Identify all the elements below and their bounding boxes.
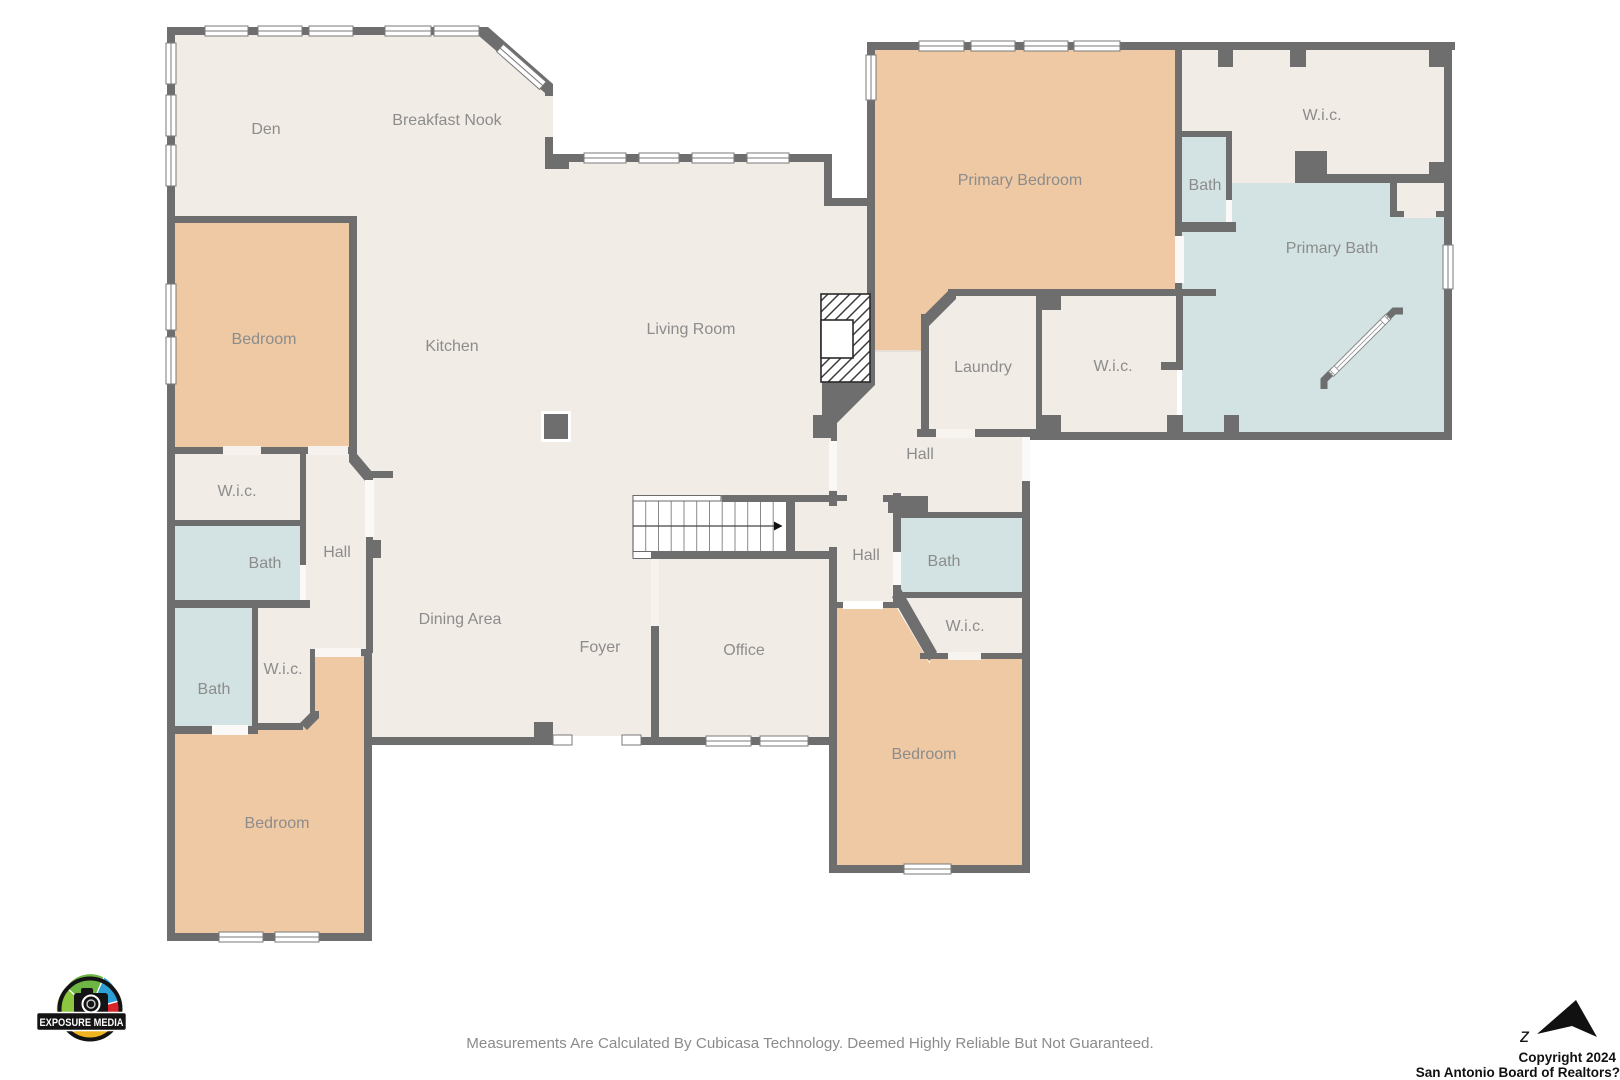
svg-text:Bedroom: Bedroom — [245, 815, 310, 832]
svg-text:W.i.c.: W.i.c. — [945, 618, 984, 635]
svg-text:Hall: Hall — [852, 547, 880, 564]
svg-text:Kitchen: Kitchen — [425, 338, 478, 355]
svg-text:Measurements Are Calculated By: Measurements Are Calculated By Cubicasa … — [466, 1035, 1153, 1052]
svg-text:W.i.c.: W.i.c. — [1302, 107, 1341, 124]
svg-text:Primary Bath: Primary Bath — [1286, 240, 1378, 257]
svg-text:San Antonio Board of Realtors?: San Antonio Board of Realtors? — [1416, 1065, 1620, 1080]
svg-text:Den: Den — [251, 121, 280, 138]
svg-text:W.i.c.: W.i.c. — [1093, 358, 1132, 375]
svg-text:Dining Area: Dining Area — [419, 611, 502, 628]
svg-text:W.i.c.: W.i.c. — [217, 483, 256, 500]
svg-text:Bath: Bath — [249, 555, 282, 572]
svg-text:Bath: Bath — [928, 553, 961, 570]
svg-text:Bath: Bath — [198, 681, 231, 698]
svg-text:Primary Bedroom: Primary Bedroom — [958, 172, 1082, 189]
svg-text:Breakfast Nook: Breakfast Nook — [392, 112, 502, 129]
svg-text:Hall: Hall — [323, 544, 351, 561]
svg-text:Bedroom: Bedroom — [892, 746, 957, 763]
svg-text:Living Room: Living Room — [647, 321, 736, 338]
svg-text:Foyer: Foyer — [580, 639, 622, 656]
svg-text:Bath: Bath — [1189, 177, 1222, 194]
svg-text:W.i.c.: W.i.c. — [263, 661, 302, 678]
svg-text:Bedroom: Bedroom — [232, 331, 297, 348]
svg-text:Office: Office — [723, 642, 765, 659]
svg-text:Hall: Hall — [906, 446, 934, 463]
svg-text:Laundry: Laundry — [954, 359, 1012, 376]
svg-text:Copyright 2024: Copyright 2024 — [1518, 1050, 1616, 1065]
svg-text:EXPOSURE MEDIA: EXPOSURE MEDIA — [40, 1017, 124, 1029]
svg-text:z: z — [1519, 1026, 1530, 1047]
